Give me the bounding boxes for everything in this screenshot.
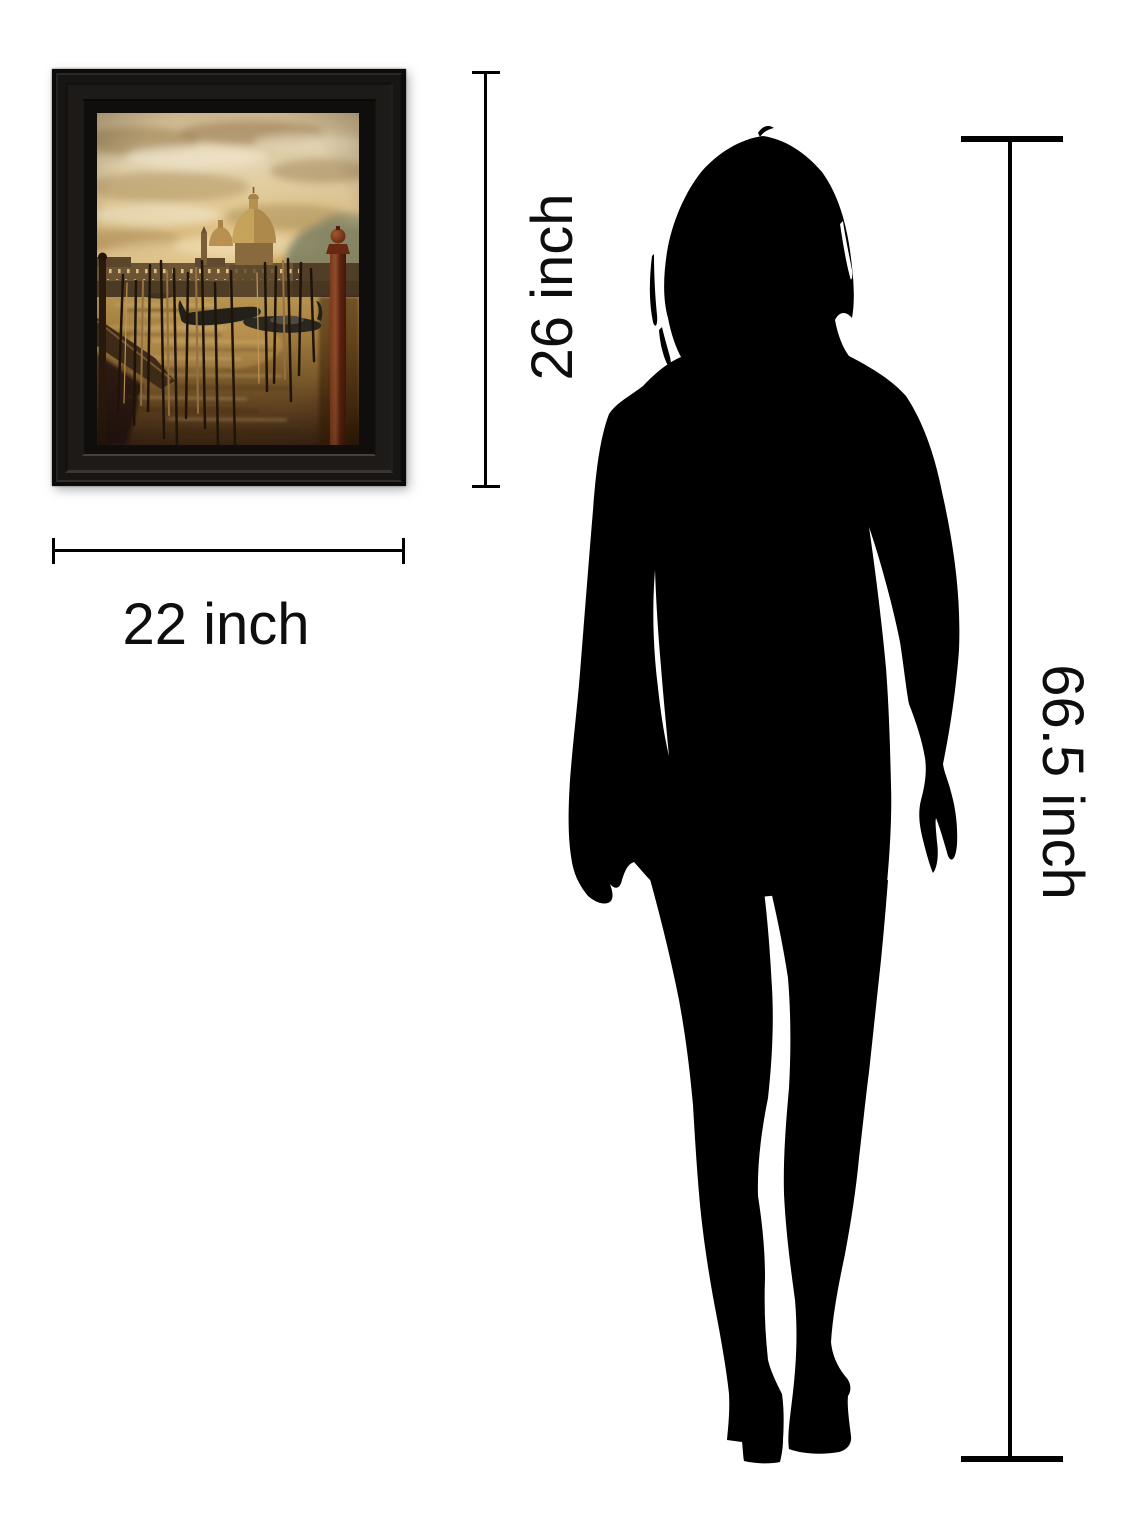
woman-silhouette <box>0 0 1137 1536</box>
silhouette-upper-body <box>569 136 960 903</box>
product-size-comparison-diagram: 26 inch 22 inch 66.5 inch <box>0 0 1137 1536</box>
